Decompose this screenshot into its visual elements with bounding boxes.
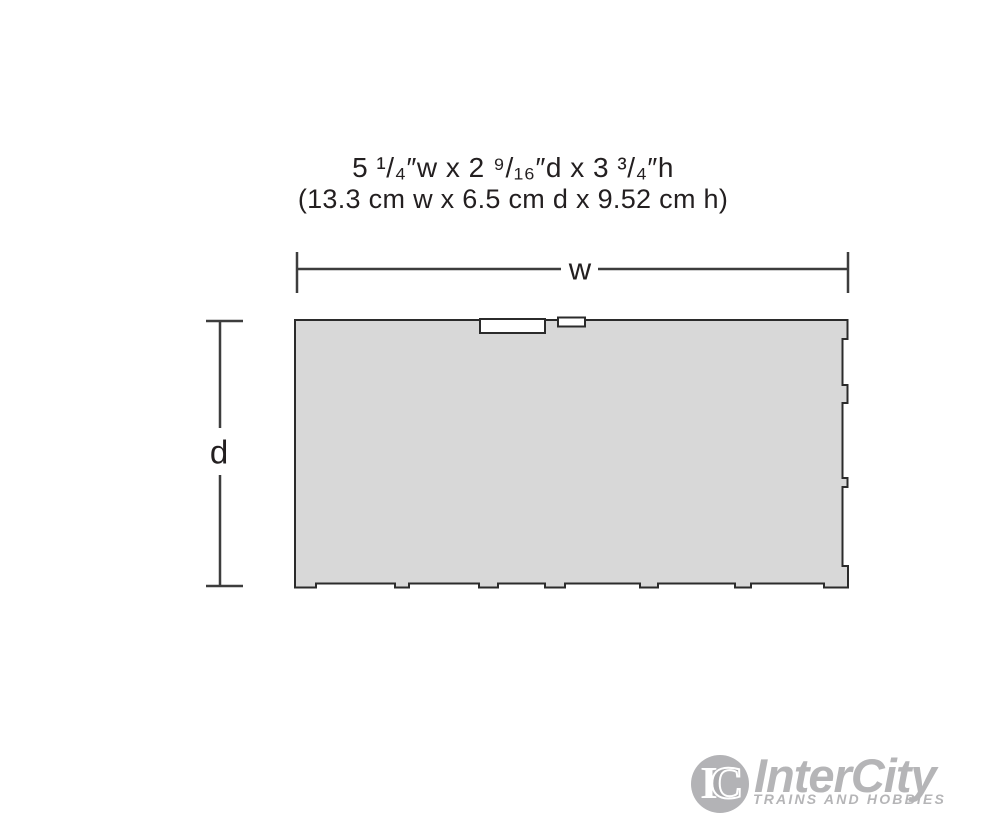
footprint-outline	[295, 320, 848, 588]
top-notch-small	[558, 318, 585, 327]
intercity-monogram-icon: C I	[691, 755, 749, 813]
width-label: w	[569, 254, 591, 285]
top-notch-large	[480, 319, 545, 333]
intercity-logo: C I InterCity TRAINS AND HOBBIES	[688, 752, 978, 822]
logo-tagline-text: TRAINS AND HOBBIES	[753, 791, 946, 807]
dimension-diagram-page: 5 ¹/₄″w x 2 ⁹/₁₆″d x 3 ³/₄″h (13.3 cm w …	[0, 0, 1000, 833]
monogram-letter-i: I	[700, 760, 718, 806]
depth-label: d	[210, 436, 228, 469]
footprint-diagram	[0, 0, 1000, 833]
